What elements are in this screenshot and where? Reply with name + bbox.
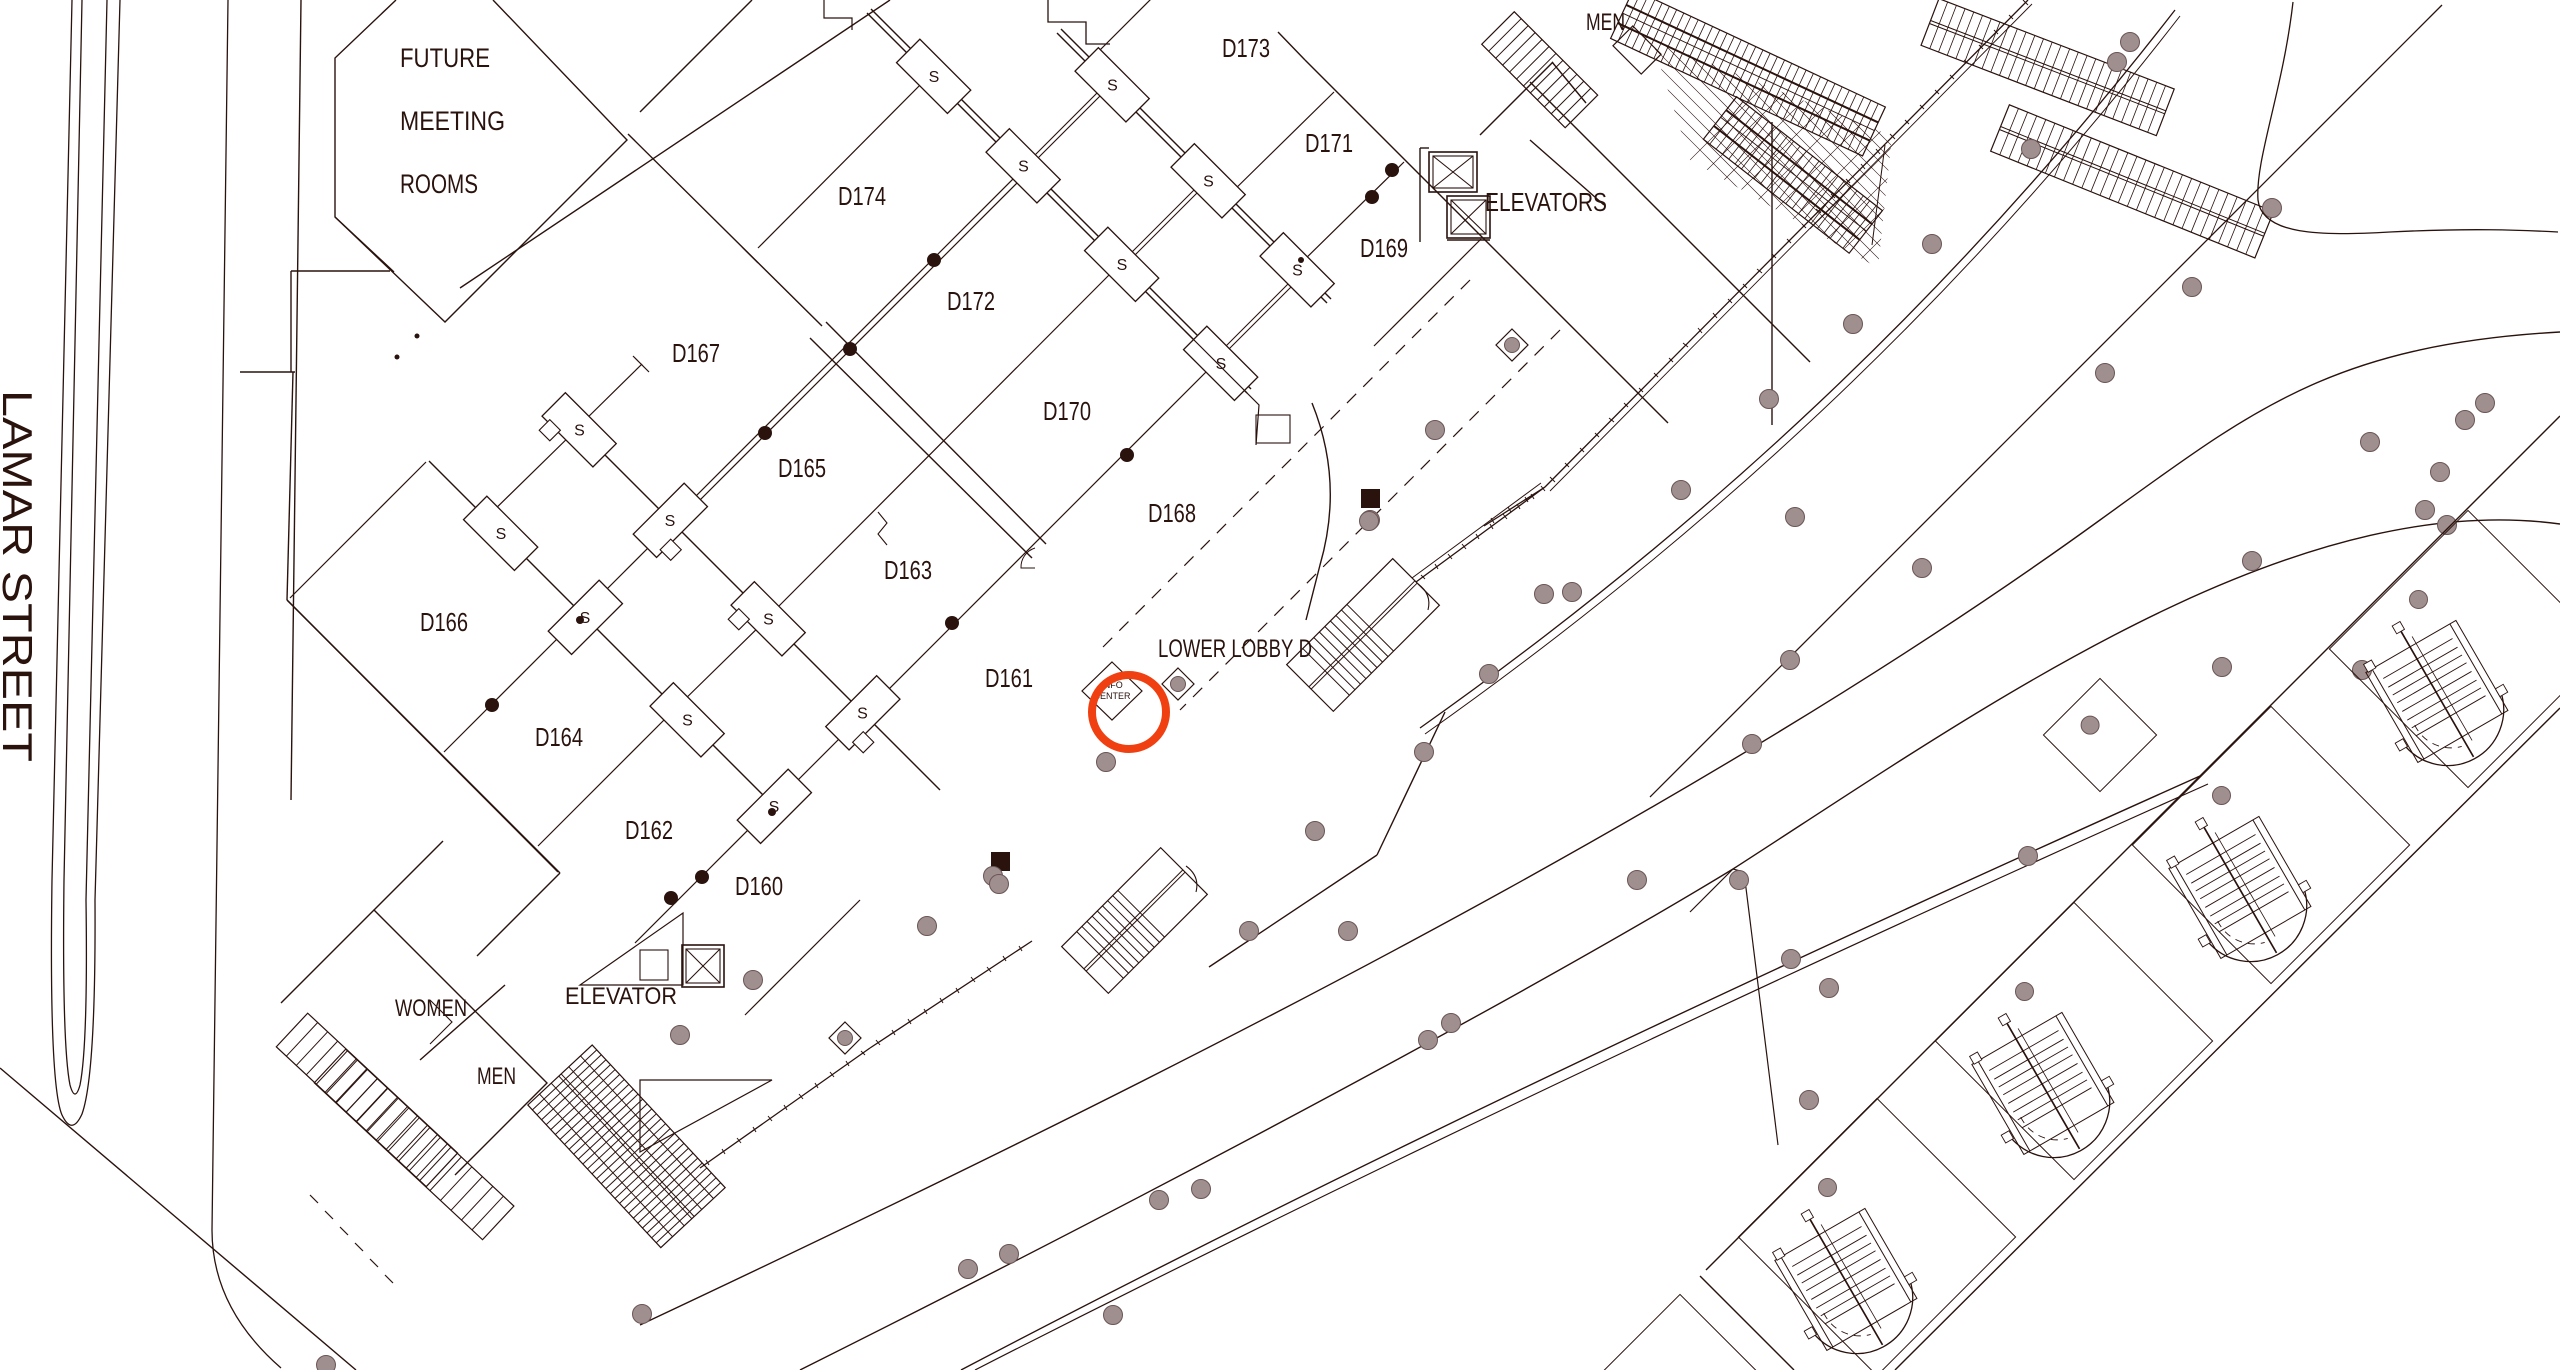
svg-text:D171: D171 xyxy=(1305,128,1353,158)
svg-text:S: S xyxy=(682,713,693,730)
svg-text:D174: D174 xyxy=(838,181,886,211)
svg-text:S: S xyxy=(857,706,868,723)
svg-text:D166: D166 xyxy=(420,607,468,637)
svg-text:D172: D172 xyxy=(947,286,995,316)
svg-text:S: S xyxy=(763,612,774,629)
svg-text:LOWER LOBBY D: LOWER LOBBY D xyxy=(1158,635,1312,663)
svg-text:MEN: MEN xyxy=(477,1063,516,1090)
svg-text:S: S xyxy=(1292,263,1303,280)
svg-text:S: S xyxy=(665,513,676,530)
svg-text:D173: D173 xyxy=(1222,33,1270,63)
svg-text:S: S xyxy=(496,526,507,543)
svg-text:D165: D165 xyxy=(778,453,826,483)
svg-text:S: S xyxy=(1018,159,1029,176)
svg-text:D170: D170 xyxy=(1043,396,1091,426)
svg-text:D160: D160 xyxy=(735,871,783,901)
svg-text:FUTURE: FUTURE xyxy=(400,43,490,73)
svg-text:D161: D161 xyxy=(985,663,1033,693)
svg-text:MEN: MEN xyxy=(1586,9,1625,36)
svg-text:S: S xyxy=(929,69,940,86)
svg-text:D163: D163 xyxy=(884,555,932,585)
svg-text:S: S xyxy=(1203,174,1214,191)
svg-text:ELEVATOR: ELEVATOR xyxy=(565,983,677,1010)
svg-text:D169: D169 xyxy=(1360,233,1408,263)
svg-text:LAMAR STREET: LAMAR STREET xyxy=(0,390,41,762)
svg-text:MEETING: MEETING xyxy=(400,106,505,136)
svg-text:ROOMS: ROOMS xyxy=(400,169,478,199)
svg-text:D164: D164 xyxy=(535,722,583,752)
svg-text:S: S xyxy=(1117,257,1128,274)
svg-text:WOMEN: WOMEN xyxy=(395,995,467,1022)
svg-text:D168: D168 xyxy=(1148,498,1196,528)
svg-text:S: S xyxy=(1107,78,1118,95)
svg-text:D167: D167 xyxy=(672,338,720,368)
svg-text:S: S xyxy=(574,423,585,440)
svg-text:D162: D162 xyxy=(625,815,673,845)
